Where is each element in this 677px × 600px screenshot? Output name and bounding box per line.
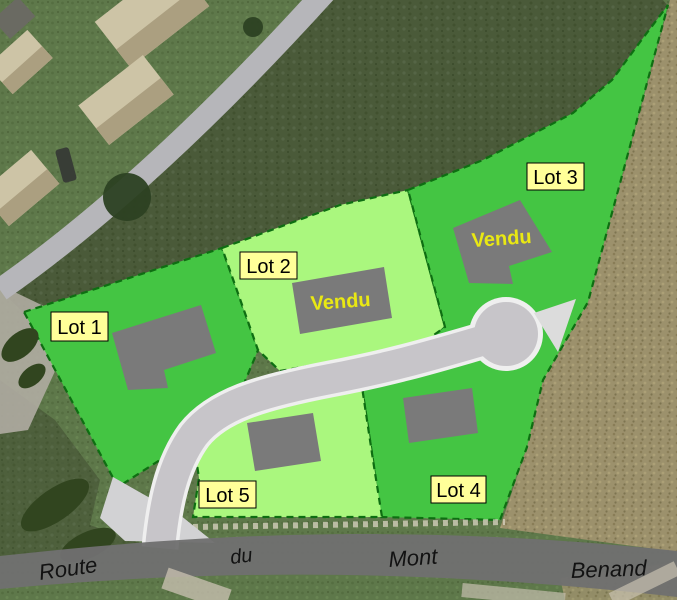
svg-text:Lot 3: Lot 3: [533, 167, 577, 189]
tree-small: [243, 17, 263, 37]
svg-text:Lot 5: Lot 5: [205, 485, 249, 507]
lot-1-label: Lot 1: [51, 312, 108, 341]
dirt-path-below-road-middle: [462, 590, 565, 600]
lot-5-building: [247, 413, 321, 471]
lot-4-label: Lot 4: [431, 476, 486, 503]
tree: [103, 173, 151, 221]
road-word-mont: Mont: [388, 544, 439, 572]
lot-2-label: Lot 2: [240, 252, 297, 279]
site-plan-svg: Vendu Vendu Lot 1 Lot 2 Lot 3 Lot 4 Lot …: [0, 0, 677, 600]
road-word-du: du: [229, 544, 254, 569]
svg-text:Lot 2: Lot 2: [246, 256, 290, 278]
lot-2-sold-tag: Vendu: [310, 289, 371, 315]
svg-text:Lot 1: Lot 1: [57, 317, 101, 339]
road-word-benand: Benand: [570, 555, 647, 583]
site-plan: Vendu Vendu Lot 1 Lot 2 Lot 3 Lot 4 Lot …: [0, 0, 677, 600]
lot-5-label: Lot 5: [199, 481, 256, 508]
turning-circle: [474, 302, 538, 366]
lot-3-sold-tag: Vendu: [471, 226, 532, 252]
lot-3-label: Lot 3: [527, 163, 584, 190]
svg-text:Lot 4: Lot 4: [436, 480, 480, 502]
